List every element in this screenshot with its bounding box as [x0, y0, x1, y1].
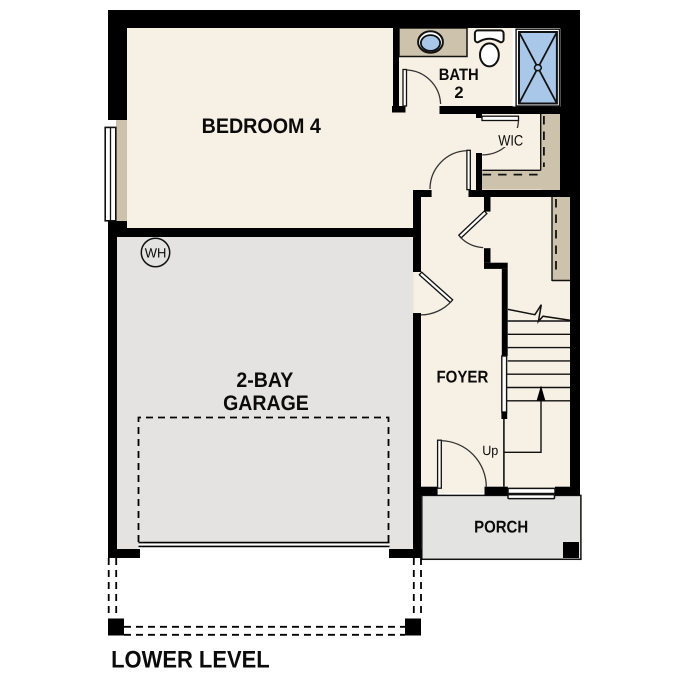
svg-text:2-BAY: 2-BAY — [236, 369, 293, 392]
svg-text:GARAGE: GARAGE — [223, 392, 309, 415]
svg-text:LOWER LEVEL: LOWER LEVEL — [111, 647, 270, 674]
svg-text:BEDROOM 4: BEDROOM 4 — [202, 115, 322, 138]
svg-text:WH: WH — [145, 245, 167, 260]
svg-text:PORCH: PORCH — [474, 518, 528, 537]
svg-text:Up: Up — [482, 443, 498, 458]
svg-text:2: 2 — [454, 84, 463, 102]
svg-text:FOYER: FOYER — [437, 367, 489, 386]
svg-text:BATH: BATH — [439, 66, 479, 84]
svg-text:WIC: WIC — [498, 132, 523, 149]
